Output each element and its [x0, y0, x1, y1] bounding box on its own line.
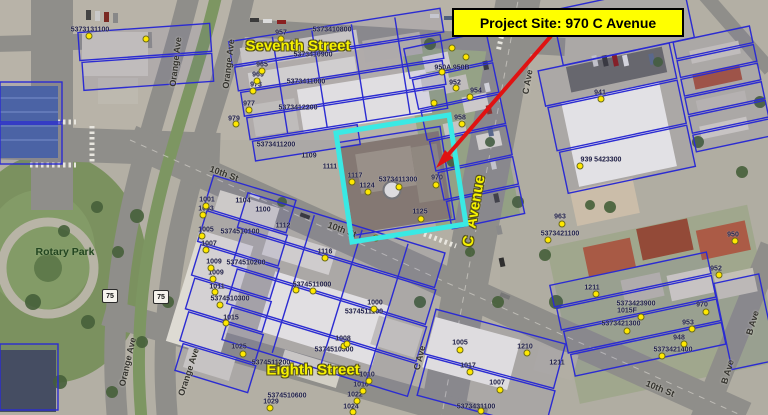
project-site-highlight — [336, 115, 466, 242]
project-site-callout-text: Project Site: 970 C Avenue — [480, 15, 656, 31]
aerial-map[interactable]: Seventh StreetEighth StreetC AvenueRotar… — [0, 0, 768, 415]
callout-arrow-icon — [436, 36, 551, 168]
annotation-overlay — [0, 0, 768, 415]
project-site-callout: Project Site: 970 C Avenue — [452, 8, 684, 37]
